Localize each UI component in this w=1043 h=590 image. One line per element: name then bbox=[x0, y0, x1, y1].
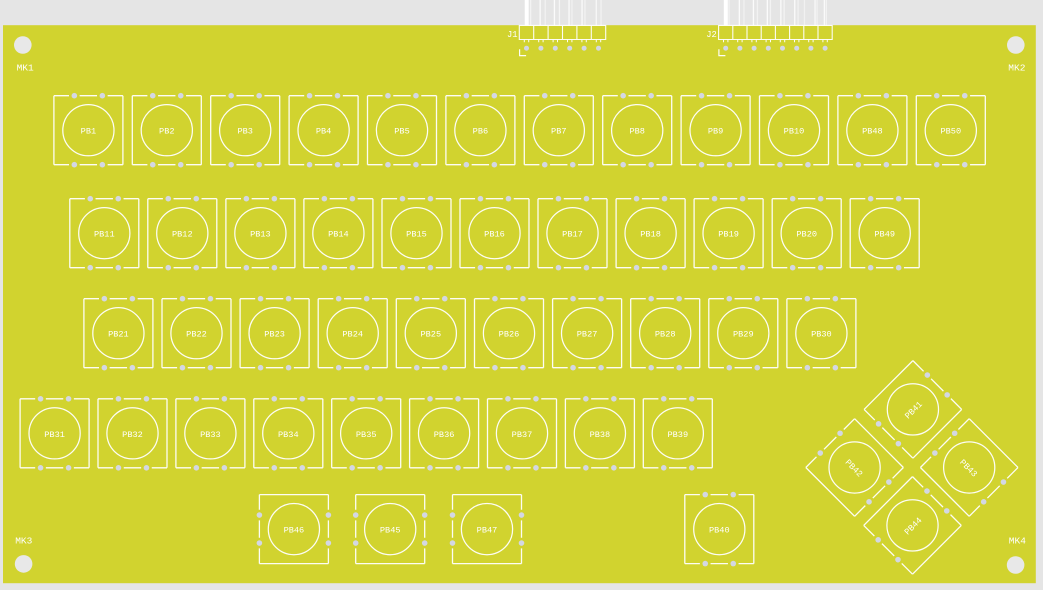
svg-text:PB25: PB25 bbox=[420, 330, 441, 340]
svg-text:MK4: MK4 bbox=[1009, 536, 1026, 547]
svg-text:PB24: PB24 bbox=[342, 330, 363, 340]
svg-text:PB7: PB7 bbox=[551, 127, 566, 137]
svg-text:PB47: PB47 bbox=[477, 526, 498, 536]
svg-text:PB17: PB17 bbox=[562, 230, 583, 240]
svg-text:J1: J1 bbox=[507, 30, 518, 40]
svg-text:PB32: PB32 bbox=[122, 430, 143, 440]
svg-text:PB38: PB38 bbox=[590, 430, 611, 440]
svg-text:PB27: PB27 bbox=[577, 330, 598, 340]
svg-text:PB30: PB30 bbox=[811, 330, 832, 340]
svg-text:PB18: PB18 bbox=[640, 230, 661, 240]
svg-text:PB2: PB2 bbox=[159, 127, 174, 137]
svg-text:PB37: PB37 bbox=[512, 430, 533, 440]
svg-text:PB19: PB19 bbox=[718, 230, 739, 240]
svg-text:PB28: PB28 bbox=[655, 330, 676, 340]
svg-text:PB1: PB1 bbox=[81, 127, 96, 137]
svg-text:PB16: PB16 bbox=[484, 230, 505, 240]
svg-text:MK3: MK3 bbox=[15, 536, 32, 547]
svg-text:PB39: PB39 bbox=[667, 430, 688, 440]
svg-text:MK1: MK1 bbox=[17, 63, 34, 74]
svg-text:PB35: PB35 bbox=[356, 430, 377, 440]
svg-text:PB45: PB45 bbox=[380, 526, 401, 536]
svg-text:PB10: PB10 bbox=[784, 127, 805, 137]
svg-text:PB6: PB6 bbox=[473, 127, 488, 137]
svg-text:PB33: PB33 bbox=[200, 430, 221, 440]
svg-text:PB9: PB9 bbox=[708, 127, 723, 137]
svg-text:PB13: PB13 bbox=[250, 230, 271, 240]
svg-text:PB31: PB31 bbox=[44, 430, 65, 440]
svg-text:J2: J2 bbox=[706, 30, 717, 40]
svg-text:PB40: PB40 bbox=[709, 526, 730, 536]
svg-text:PB22: PB22 bbox=[186, 330, 207, 340]
svg-text:PB5: PB5 bbox=[394, 127, 409, 137]
svg-text:PB11: PB11 bbox=[94, 230, 115, 240]
svg-text:PB29: PB29 bbox=[733, 330, 754, 340]
svg-text:PB49: PB49 bbox=[874, 230, 895, 240]
svg-text:PB21: PB21 bbox=[108, 330, 129, 340]
svg-text:PB12: PB12 bbox=[172, 230, 193, 240]
svg-text:PB3: PB3 bbox=[237, 127, 252, 137]
svg-text:PB4: PB4 bbox=[316, 127, 331, 137]
svg-text:PB8: PB8 bbox=[629, 127, 644, 137]
svg-text:PB34: PB34 bbox=[278, 430, 299, 440]
svg-text:PB50: PB50 bbox=[940, 127, 961, 137]
svg-text:PB14: PB14 bbox=[328, 230, 349, 240]
svg-text:PB26: PB26 bbox=[499, 330, 520, 340]
svg-text:PB36: PB36 bbox=[434, 430, 455, 440]
svg-text:PB23: PB23 bbox=[264, 330, 285, 340]
svg-text:PB46: PB46 bbox=[284, 526, 305, 536]
svg-text:MK2: MK2 bbox=[1008, 63, 1025, 74]
svg-text:PB20: PB20 bbox=[796, 230, 817, 240]
svg-text:PB48: PB48 bbox=[862, 127, 883, 137]
svg-text:PB15: PB15 bbox=[406, 230, 427, 240]
